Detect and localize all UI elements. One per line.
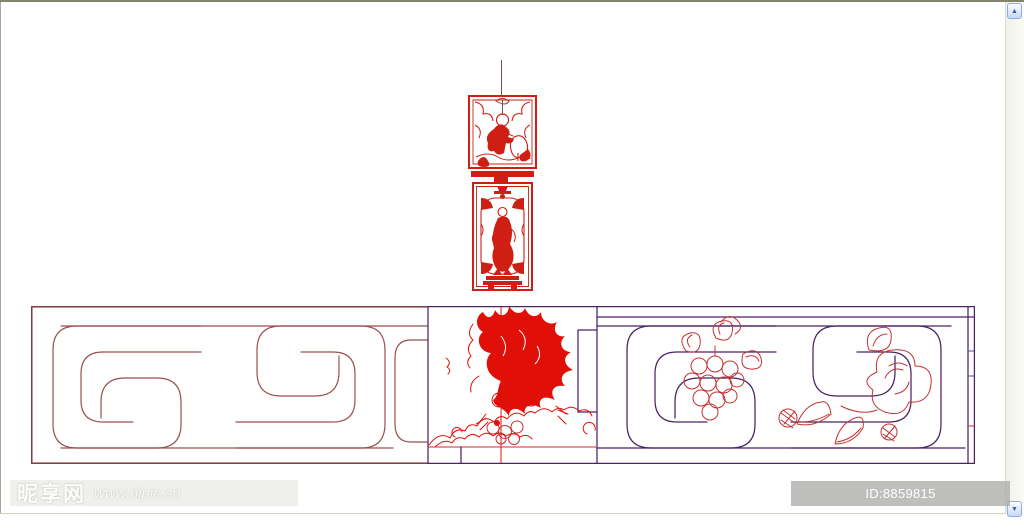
flower-spray: [779, 327, 931, 444]
image-id-text: ID:8859815 NO:20120729160335062391: [813, 486, 988, 526]
dragon-flames: [477, 306, 573, 416]
site-url-text: www.nipic.cn: [94, 485, 181, 502]
window-border-left: [0, 2, 1, 514]
scroll-down-arrow-icon: ▼: [1011, 506, 1018, 513]
grape-cluster: [682, 316, 762, 420]
cad-preview-window: ▲ ▼ 昵享网 www.nipic.cn ID:8859815 NO:20120…: [0, 0, 1024, 514]
band-right-meander: [597, 307, 974, 463]
site-logo-text: 昵享网: [17, 478, 86, 508]
carved-rail-band-drawing: [31, 306, 975, 464]
band-dragon-section: [428, 306, 597, 463]
watermark-id-badge: ID:8859815 NO:20120729160335062391: [791, 481, 1010, 506]
carved-hanging-panels-drawing: [440, 55, 560, 305]
band-left-meander: [53, 326, 427, 448]
scroll-up-arrow-icon: ▲: [1011, 8, 1018, 15]
vertical-scrollbar[interactable]: ▲ ▼: [1005, 2, 1024, 514]
carved-panel-figure: [473, 183, 532, 290]
window-border-top: [0, 0, 1024, 2]
scroll-up-button[interactable]: ▲: [1007, 3, 1022, 19]
carved-panel-birds: [469, 96, 536, 168]
panel-pedestal: [471, 171, 534, 182]
watermark-site-badge: 昵享网 www.nipic.cn: [10, 480, 298, 506]
